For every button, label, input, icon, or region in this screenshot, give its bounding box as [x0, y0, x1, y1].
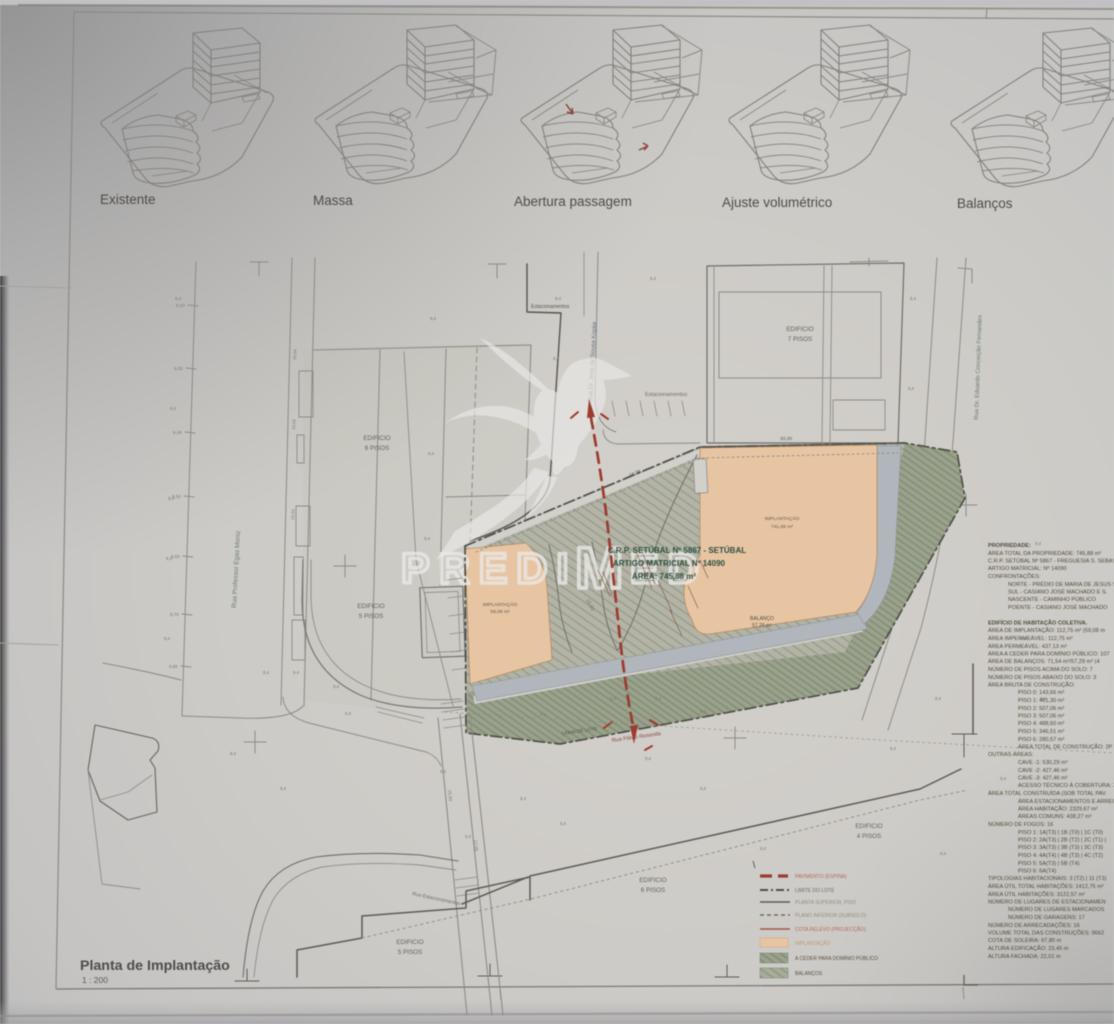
svg-text:ÁREA ÚTIL HABITAÇÕES: 3122,57: ÁREA ÚTIL HABITAÇÕES: 3122,57 m² [988, 891, 1085, 898]
svg-text:EDIFICIO: EDIFICIO [357, 603, 384, 610]
svg-text:9,4: 9,4 [760, 846, 767, 851]
svg-text:9,4: 9,4 [700, 786, 707, 791]
svg-text:BALANÇO: BALANÇO [750, 616, 774, 622]
svg-text:9,4: 9,4 [560, 821, 567, 826]
svg-text:PREDI: PREDI [401, 545, 577, 593]
svg-text:9,4: 9,4 [935, 696, 942, 701]
svg-text:ALTURA FACHADA: 22,01 m: ALTURA FACHADA: 22,01 m [988, 954, 1061, 960]
svg-text:EDIFICIO: EDIFICIO [396, 939, 423, 946]
svg-text:4 PISOS: 4 PISOS [857, 833, 882, 840]
svg-text:NORTE - PRÉDIO DE MARIA DE JES: NORTE - PRÉDIO DE MARIA DE JESUS S. [1008, 581, 1114, 588]
svg-text:33,30: 33,30 [780, 436, 792, 442]
svg-text:Estacionamentos: Estacionamentos [531, 304, 570, 310]
svg-text:6 PISOS: 6 PISOS [365, 445, 390, 452]
svg-text:PROPRIEDADE:: PROPRIEDADE: [988, 543, 1031, 549]
svg-text:PISO 5: 346,51 m²: PISO 5: 346,51 m² [1018, 729, 1064, 735]
svg-text:9,4: 9,4 [440, 769, 447, 774]
svg-text:9,4: 9,4 [908, 386, 915, 391]
svg-text:COTA DE SOLEIRA: 97,80 m: COTA DE SOLEIRA: 97,80 m [988, 938, 1062, 944]
svg-text:EDIFICIO: EDIFICIO [363, 435, 390, 442]
svg-text:NASCENTE - CAMINHO PÚBLICO: NASCENTE - CAMINHO PÚBLICO [1008, 596, 1097, 603]
svg-text:9,20: 9,20 [176, 303, 185, 308]
svg-text:ÁREA: 745,88 m²: ÁREA: 745,88 m² [632, 572, 696, 581]
svg-text:6 PISOS: 6 PISOS [641, 887, 666, 894]
svg-text:PAVIMENTO (ESPINA): PAVIMENTO (ESPINA) [795, 874, 847, 880]
svg-text:9,70: 9,70 [170, 612, 179, 617]
svg-text:PLANO INFERIOR (SUBSOLO): PLANO INFERIOR (SUBSOLO) [795, 913, 866, 919]
svg-text:9,4: 9,4 [424, 536, 431, 541]
svg-text:C.R.P. SETÚBAL Nº 5867 - FREGU: C.R.P. SETÚBAL Nº 5867 - FREGUESIA S. SE… [988, 558, 1114, 565]
svg-text:9,4: 9,4 [230, 751, 237, 756]
svg-text:ÁREA DE IMPLANTAÇÃO: 112,75 m²: ÁREA DE IMPLANTAÇÃO: 112,75 m² (59,08 m [988, 627, 1105, 634]
svg-text:9,4: 9,4 [520, 796, 527, 801]
svg-text:OUTRAS ÁREAS:: OUTRAS ÁREAS: [988, 751, 1034, 758]
svg-text:ÁREA A CEDER PARA DOMÍNIO PÚBL: ÁREA A CEDER PARA DOMÍNIO PÚBLICO: 107 [988, 651, 1109, 658]
svg-text:NÚMERO DE PISOS ACIMA DO SOLO:: NÚMERO DE PISOS ACIMA DO SOLO: 7 [988, 666, 1093, 673]
svg-text:9,30: 9,30 [174, 366, 183, 371]
svg-text:9,4: 9,4 [540, 712, 547, 717]
svg-text:9,4: 9,4 [166, 556, 173, 561]
svg-text:NÚMERO DE FOGOS: 16: NÚMERO DE FOGOS: 16 [988, 821, 1053, 828]
svg-text:SUL - CASIANO JOSÉ MACHADO E S: SUL - CASIANO JOSÉ MACHADO E S. [1008, 589, 1108, 596]
svg-text:ÁREAS COMUNS: 438,27 m²: ÁREAS COMUNS: 438,27 m² [1018, 813, 1092, 820]
svg-text:EDIFÍCIO DE HABITAÇÃO COLETIVA: EDIFÍCIO DE HABITAÇÃO COLETIVA. [988, 619, 1088, 627]
svg-text:NÚMERO DE PISOS ABAIXO DO SOLO: NÚMERO DE PISOS ABAIXO DO SOLO: 3 [988, 674, 1096, 681]
svg-text:POENTE - CASIANO JOSÉ MACHADO: POENTE - CASIANO JOSÉ MACHADO [1008, 604, 1108, 611]
svg-text:9,4: 9,4 [655, 696, 662, 701]
svg-text:Abertura passagem: Abertura passagem [514, 194, 632, 209]
svg-text:ACESSO TÉCNICO À COBERTURA: 3: ACESSO TÉCNICO À COBERTURA: 3 [1018, 782, 1114, 789]
svg-text:9,4: 9,4 [553, 356, 560, 361]
svg-text:NÚMERO DE GARAGENS: 17: NÚMERO DE GARAGENS: 17 [1008, 914, 1085, 921]
svg-text:NÚMERO DE LUGARES DE ESTACIONA: NÚMERO DE LUGARES DE ESTACIONAMEN [988, 899, 1106, 906]
svg-text:NÚMERO DE ARRECADAÇÕES: 16: NÚMERO DE ARRECADAÇÕES: 16 [988, 922, 1080, 929]
svg-text:9,4: 9,4 [940, 851, 947, 856]
svg-text:NÚMERO DE LUGARES MARCADOS: NÚMERO DE LUGARES MARCADOS [1008, 906, 1105, 913]
svg-text:Balanços: Balanços [957, 196, 1013, 211]
svg-text:ÁREA TOTAL DA PROPRIEDADE: 745: ÁREA TOTAL DA PROPRIEDADE: 745,88 m² [988, 550, 1101, 557]
svg-text:ARTIGO MATRICIAL: Nº 14090: ARTIGO MATRICIAL: Nº 14090 [988, 565, 1067, 572]
svg-text:A CEDER PARA DOMÍNIO PÚBLICO: A CEDER PARA DOMÍNIO PÚBLICO [795, 955, 878, 962]
svg-text:PISO 6: 280,57 m²: PISO 6: 280,57 m² [1018, 737, 1064, 743]
svg-text:PISO 3: 3A(T3) | 3B (T3) | 3C: PISO 3: 3A(T3) | 3B (T3) | 3C (T3) [1018, 845, 1103, 851]
svg-text:PISO 6: 6A(T4): PISO 6: 6A(T4) [1018, 869, 1056, 875]
svg-text:IMPLANTAÇÃO: IMPLANTAÇÃO [765, 515, 800, 522]
svg-text:9,4: 9,4 [345, 711, 352, 716]
svg-text:IMPLANTAÇÃO: IMPLANTAÇÃO [483, 601, 518, 608]
svg-text:9,4: 9,4 [555, 296, 562, 301]
svg-text:CAVE -1: 530,29 m²: CAVE -1: 530,29 m² [1018, 760, 1068, 766]
svg-text:59,08 m²: 59,08 m² [490, 609, 510, 615]
svg-text:CAVE -3: 427,46 m²: CAVE -3: 427,46 m² [1018, 776, 1068, 782]
svg-text:9,4: 9,4 [280, 786, 287, 791]
svg-text:EDIFICIO: EDIFICIO [786, 326, 813, 333]
svg-text:1 : 200: 1 : 200 [82, 975, 108, 985]
svg-text:9,4: 9,4 [293, 670, 300, 675]
svg-text:9,4: 9,4 [700, 709, 707, 714]
svg-text:ÁREA DE BALANÇOS: 71,54 m²/57,: ÁREA DE BALANÇOS: 71,54 m²/57,29 m² (4 [988, 658, 1100, 665]
svg-text:9,4: 9,4 [910, 296, 917, 301]
svg-text:VOLUME TOTAL DAS CONSTRUÇÕES:: VOLUME TOTAL DAS CONSTRUÇÕES: 9662 [988, 930, 1104, 937]
svg-text:5 PISOS: 5 PISOS [359, 613, 384, 620]
svg-text:ÁREA IMPERMEÁVEL: 112,75 m²: ÁREA IMPERMEÁVEL: 112,75 m² [988, 635, 1073, 642]
svg-text:5 PISOS: 5 PISOS [398, 949, 423, 956]
svg-text:C.R.P. SETÚBAL Nº 5867 - SETÚB: C.R.P. SETÚBAL Nº 5867 - SETÚBAL [608, 546, 746, 555]
svg-text:9,4: 9,4 [1000, 776, 1007, 781]
svg-text:ÁREA TOTAL DE CONSTRUÇÃO: 2P: ÁREA TOTAL DE CONSTRUÇÃO: 2P [1018, 744, 1113, 751]
svg-text:Planta de Implantação: Planta de Implantação [80, 958, 230, 974]
svg-text:16,04: 16,04 [291, 418, 297, 430]
svg-text:PISO 3: 507,06 m²: PISO 3: 507,06 m² [1018, 714, 1064, 720]
svg-text:Estacionamentos: Estacionamentos [645, 392, 687, 398]
svg-text:7 PISOS: 7 PISOS [788, 336, 813, 343]
svg-text:9,4: 9,4 [890, 746, 897, 751]
svg-text:9,4: 9,4 [175, 296, 182, 301]
svg-text:PISO 2: 507,06 m²: PISO 2: 507,06 m² [1018, 706, 1064, 712]
svg-text:PISO 1: 1A(T3) | 1B (T0) | 1C: PISO 1: 1A(T3) | 1B (T0) | 1C (T0) [1018, 830, 1103, 836]
svg-text:CONFRONTAÇÕES:: CONFRONTAÇÕES: [988, 573, 1041, 580]
svg-text:BALANÇOS: BALANÇOS [795, 971, 823, 977]
svg-text:PISO 5: 5A(T3) | 5B (T4): PISO 5: 5A(T3) | 5B (T4) [1018, 861, 1080, 867]
svg-text:ÁREA HABITAÇÃO: 2329,67 m²: ÁREA HABITAÇÃO: 2329,67 m² [1018, 806, 1098, 813]
svg-text:9,4: 9,4 [610, 696, 617, 701]
svg-text:PISO 4: 488,60 m²: PISO 4: 488,60 m² [1018, 721, 1064, 727]
svg-text:EDIFICIO: EDIFICIO [639, 877, 666, 884]
svg-text:PISO 4: 4A(T4) | 4B (T3) | 4C: PISO 4: 4A(T4) | 4B (T3) | 4C (T2) [1018, 853, 1103, 859]
svg-text:IMPLANTAÇÃO: IMPLANTAÇÃO [795, 940, 831, 947]
svg-text:ÁREA TOTAL CONSTRUÍDA (SOB TOT: ÁREA TOTAL CONSTRUÍDA (SOB TOTAL PAV [988, 790, 1106, 797]
svg-text:PISO 1: 461,30 m²: PISO 1: 461,30 m² [1018, 698, 1064, 704]
svg-text:9,4: 9,4 [645, 756, 652, 761]
svg-text:9,4: 9,4 [650, 276, 657, 281]
svg-text:9,4: 9,4 [1035, 541, 1042, 546]
svg-text:TIPOLOGIAS HABITACIONAIS: 3 (T: TIPOLOGIAS HABITACIONAIS: 3 (T2) | 11 (T… [988, 876, 1107, 882]
svg-text:9,4: 9,4 [168, 496, 175, 501]
svg-text:Existente: Existente [100, 192, 156, 207]
svg-text:LIMITE DO LOTE: LIMITE DO LOTE [795, 888, 835, 894]
svg-text:9,4: 9,4 [164, 636, 171, 641]
svg-text:741,66 m²: 741,66 m² [771, 524, 793, 530]
svg-text:57,29 m²: 57,29 m² [752, 623, 772, 629]
svg-text:9,4: 9,4 [263, 670, 270, 675]
svg-text:9,4: 9,4 [428, 451, 435, 456]
svg-text:16,04: 16,04 [290, 508, 296, 520]
svg-text:ÁREA ESTACIONAMENTOS E ARRECA: ÁREA ESTACIONAMENTOS E ARRECA [1018, 798, 1114, 805]
svg-text:ÁREA PERMEÁVEL: 437,13 m²: ÁREA PERMEÁVEL: 437,13 m² [988, 643, 1067, 650]
svg-text:EDIFICIO: EDIFICIO [855, 823, 882, 830]
svg-text:9,4: 9,4 [430, 316, 437, 321]
svg-text:ÁREA ÚTIL TOTAL HABITAÇÕES: 14: ÁREA ÚTIL TOTAL HABITAÇÕES: 1412,75 m² [988, 883, 1104, 890]
svg-text:ÁREA BRUTA DE CONSTRUÇÃO:: ÁREA BRUTA DE CONSTRUÇÃO: [988, 682, 1075, 689]
svg-text:PISO 0: 143,66 m²: PISO 0: 143,66 m² [1018, 690, 1064, 696]
svg-text:9,4: 9,4 [465, 834, 472, 839]
svg-text:Massa: Massa [313, 193, 353, 208]
svg-text:Ajuste volumétrico: Ajuste volumétrico [722, 195, 832, 210]
svg-text:ALTURA EDIFICAÇÃO: 23,45 m: ALTURA EDIFICAÇÃO: 23,45 m [988, 945, 1069, 952]
svg-text:CAVE -2: 427,46 m²: CAVE -2: 427,46 m² [1018, 768, 1068, 774]
svg-text:9,80: 9,80 [169, 664, 178, 669]
svg-text:9,4: 9,4 [170, 406, 177, 411]
svg-text:9,40: 9,40 [173, 430, 182, 435]
svg-text:9,60: 9,60 [171, 554, 180, 559]
svg-text:PLANTA SUPERIOR, PISO: PLANTA SUPERIOR, PISO [795, 900, 856, 906]
svg-text:COTA RELEVO (PROJECÇÃO): COTA RELEVO (PROJECÇÃO) [795, 926, 866, 933]
svg-text:9,4: 9,4 [333, 684, 340, 689]
svg-text:16,04: 16,04 [292, 348, 298, 360]
svg-text:PISO 2: 2A(T3) | 2B (T2) | 2C: PISO 2: 2A(T3) | 2B (T2) | 2C (T1) ( [1018, 838, 1107, 844]
svg-text:ARTIGO MATRICIAL Nº 14090: ARTIGO MATRICIAL Nº 14090 [613, 559, 726, 568]
